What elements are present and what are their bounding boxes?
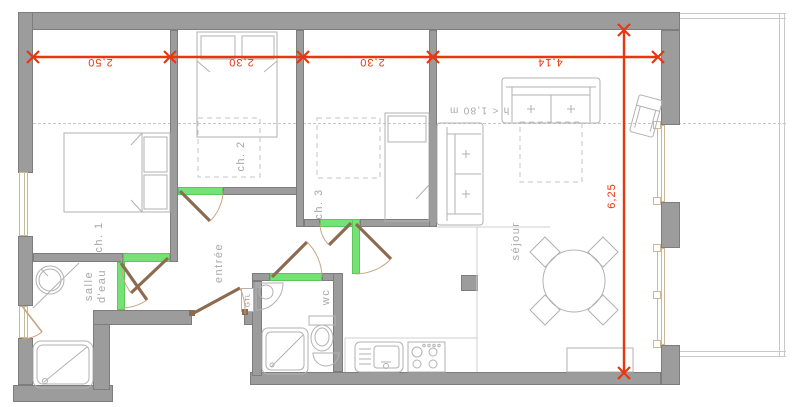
window-joint xyxy=(653,244,661,252)
wall xyxy=(18,12,680,30)
window-joint xyxy=(653,121,661,129)
skylight-dashed-rects xyxy=(198,118,582,182)
balcony-edge-right xyxy=(779,13,785,357)
window-sejour-east-upper xyxy=(657,125,665,202)
wall xyxy=(33,253,123,262)
sofa-horizontal xyxy=(502,78,600,123)
room-label-sejour: séjour xyxy=(510,222,522,261)
kitchen-post xyxy=(461,275,478,291)
room-label-ch1: ch. 1 xyxy=(93,221,105,252)
kitchen-sink xyxy=(355,342,403,372)
door-threshold-ch1 xyxy=(123,253,170,262)
door-ch2 xyxy=(180,191,223,221)
toilet xyxy=(309,316,335,351)
sofa-vertical xyxy=(437,123,483,225)
door-threshold-wc xyxy=(270,273,322,281)
wall xyxy=(661,345,680,385)
window-joint xyxy=(653,340,661,348)
wall xyxy=(429,30,437,227)
door-ch1 xyxy=(121,258,168,293)
bed-ch2 xyxy=(197,32,277,137)
dimension-sejour: 4,14 xyxy=(537,56,562,68)
window-ch1-west xyxy=(19,172,28,236)
balcony-edge-bottom xyxy=(680,351,786,357)
door-threshold-salle-eau xyxy=(117,262,125,310)
height-note: h < 1,80 m xyxy=(449,105,510,116)
room-label-entree: entrée xyxy=(213,243,225,283)
room-label-ch3: ch. 3 xyxy=(313,188,325,219)
entrance-door xyxy=(189,288,248,316)
wall xyxy=(333,273,343,372)
dimension-depth: 6,25 xyxy=(606,183,618,208)
door-threshold-ch3 xyxy=(320,219,353,227)
floor-plan: ch. 1 ch. 2 ch. 3 séjour entrée salle d'… xyxy=(0,0,800,407)
salle-eau-shower xyxy=(33,341,93,388)
window-joint xyxy=(653,197,661,205)
dining-chairs xyxy=(530,237,618,325)
wc-shower xyxy=(262,328,308,374)
wall xyxy=(296,30,304,227)
sideboard xyxy=(567,348,633,372)
wall xyxy=(18,12,33,173)
room-label-wc: wc xyxy=(320,289,332,305)
door-threshold-hallway xyxy=(352,219,360,274)
dimension-ch3: 2,30 xyxy=(359,56,384,68)
wall xyxy=(661,202,680,248)
salle-eau-basin xyxy=(33,263,79,308)
dining-table xyxy=(543,250,605,312)
bed-ch1 xyxy=(64,133,170,212)
wall xyxy=(661,30,680,125)
wall xyxy=(304,219,320,227)
dimension-ch1: 2,50 xyxy=(87,56,112,68)
wall xyxy=(252,273,270,281)
room-label-gtl: GTL xyxy=(244,293,251,307)
wall xyxy=(360,219,437,227)
plan-drawing-layer xyxy=(0,0,800,407)
cooktop xyxy=(408,342,445,372)
wall xyxy=(223,187,304,195)
room-label-salle-eau: salle d'eau xyxy=(83,266,109,306)
door-hallway xyxy=(356,224,391,274)
balcony-edge-top xyxy=(680,13,786,19)
door-threshold-ch2 xyxy=(178,187,223,195)
wall xyxy=(170,30,178,262)
wall xyxy=(18,236,33,306)
wall xyxy=(250,372,661,385)
room-label-ch2: ch. 2 xyxy=(235,140,247,171)
dimension-lines xyxy=(27,24,664,379)
door-wc xyxy=(272,242,322,277)
bed-ch3 xyxy=(385,113,429,221)
window-joint xyxy=(653,291,661,299)
wall xyxy=(93,310,192,325)
wall xyxy=(18,338,33,385)
dimension-ch2: 2,30 xyxy=(228,56,253,68)
window-salle-eau-west xyxy=(19,306,28,338)
